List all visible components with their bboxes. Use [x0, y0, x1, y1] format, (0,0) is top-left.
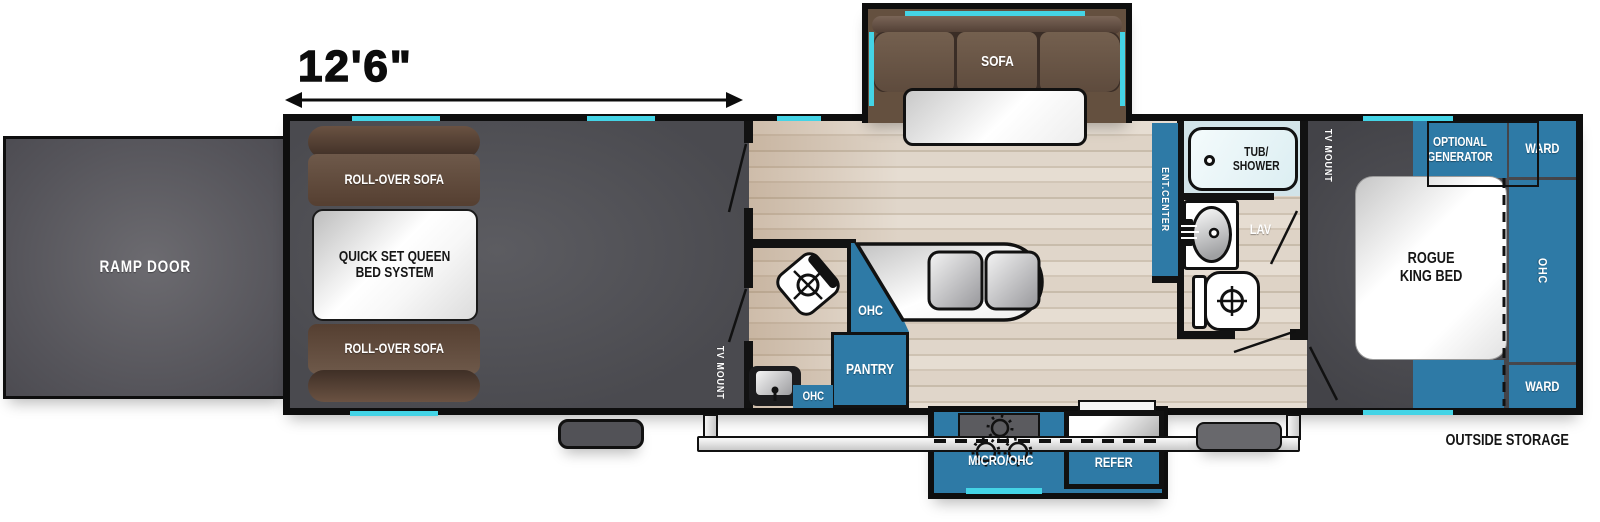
roll-over-sofa-bottom-label: ROLL-OVER SOFA: [344, 341, 444, 356]
bath-toilet: [1204, 271, 1260, 331]
roll-over-sofa-bottom: ROLL-OVER SOFA: [308, 324, 480, 374]
window-accent: [1363, 410, 1453, 415]
garage-wall: [744, 208, 753, 288]
lav-sink: [1191, 206, 1232, 263]
half-bath-ohc-label: OHC: [802, 390, 823, 403]
ramp-door: RAMP DOOR: [3, 136, 287, 399]
ramp-door-label: RAMP DOOR: [99, 258, 191, 277]
roll-over-sofa-top-label: ROLL-OVER SOFA: [344, 172, 444, 187]
bedroom-tv-mount: TV MOUNT: [1314, 124, 1342, 188]
sofa-cushion: SOFA: [957, 32, 1037, 92]
micro-ohc: MICRO/OHC: [940, 450, 1062, 472]
window-accent: [1120, 32, 1125, 106]
roll-over-sofa-bottom-bolster: [308, 370, 480, 402]
bedroom-ohc-label: OHC: [1536, 258, 1550, 284]
sofa-cushions: SOFA: [874, 32, 1120, 92]
bedroom-tv-mount-label: TV MOUNT: [1322, 129, 1333, 183]
half-bath-ohc: OHC: [793, 385, 833, 408]
lav: LAV: [1238, 218, 1282, 242]
sofa-cushion: [1040, 32, 1120, 92]
rogue-king-bed: ROGUE KING BED: [1355, 176, 1507, 360]
pantry-label: PANTRY: [846, 362, 894, 379]
bath-wall: [1177, 331, 1235, 339]
window-accent: [966, 488, 1042, 494]
outside-storage: OUTSIDE STORAGE: [1425, 429, 1590, 453]
window-accent: [587, 116, 655, 121]
under-bed-cabinet: [1413, 360, 1504, 408]
roll-over-sofa-top: ROLL-OVER SOFA: [308, 154, 480, 206]
rv-floorplan: 12'6" RAMP DOOR ROLL-OVER SOFA QUICK SET…: [0, 0, 1600, 522]
garage-tv-mount-label: TV MOUNT: [714, 346, 725, 400]
garage-wall: [744, 121, 753, 143]
ent-center-cap: [1152, 276, 1178, 283]
rogue-king-bed-label: ROGUE KING BED: [1400, 250, 1463, 285]
window-accent: [777, 116, 821, 121]
queen-bed-label: QUICK SET QUEEN BED SYSTEM: [339, 249, 450, 282]
dimension-label: 12'6": [298, 42, 518, 96]
bedroom-wall: [1300, 121, 1308, 340]
ward-bottom: WARD: [1509, 365, 1576, 408]
refer-label: REFER: [1095, 455, 1133, 470]
queen-bed: QUICK SET QUEEN BED SYSTEM: [312, 209, 478, 321]
garage-tv-mount: TV MOUNT: [706, 340, 734, 406]
kitchen-ohc-label-box: OHC: [849, 298, 893, 324]
entry-step: [1196, 422, 1282, 451]
pantry: PANTRY: [831, 332, 909, 408]
window-accent: [350, 411, 438, 416]
sink-basin: [756, 371, 792, 395]
generator-compartment-outline: [1427, 121, 1539, 187]
tub-shower-label: TUB/ SHOWER: [1233, 145, 1280, 174]
bath-wall: [1184, 193, 1274, 200]
half-bath-wall: [749, 239, 856, 248]
dimension-text: 12'6": [298, 42, 413, 91]
bedroom-ohc: OHC: [1509, 180, 1576, 362]
window-accent: [352, 116, 440, 121]
ent-center: ENT.CENTER: [1152, 123, 1178, 276]
sofa-table: [903, 88, 1087, 146]
garage-step: [558, 419, 644, 449]
sofa-label: SOFA: [981, 54, 1014, 71]
lav-label: LAV: [1249, 222, 1271, 237]
ent-center-label: ENT.CENTER: [1159, 167, 1170, 232]
micro-ohc-label: MICRO/OHC: [968, 453, 1033, 468]
tub-shower: TUB/ SHOWER: [1188, 127, 1298, 191]
ward-bottom-label: WARD: [1525, 379, 1559, 394]
sofa-cushion: [874, 32, 954, 92]
kitchen-ohc-label: OHC: [859, 303, 884, 318]
outside-storage-label: OUTSIDE STORAGE: [1446, 432, 1570, 450]
